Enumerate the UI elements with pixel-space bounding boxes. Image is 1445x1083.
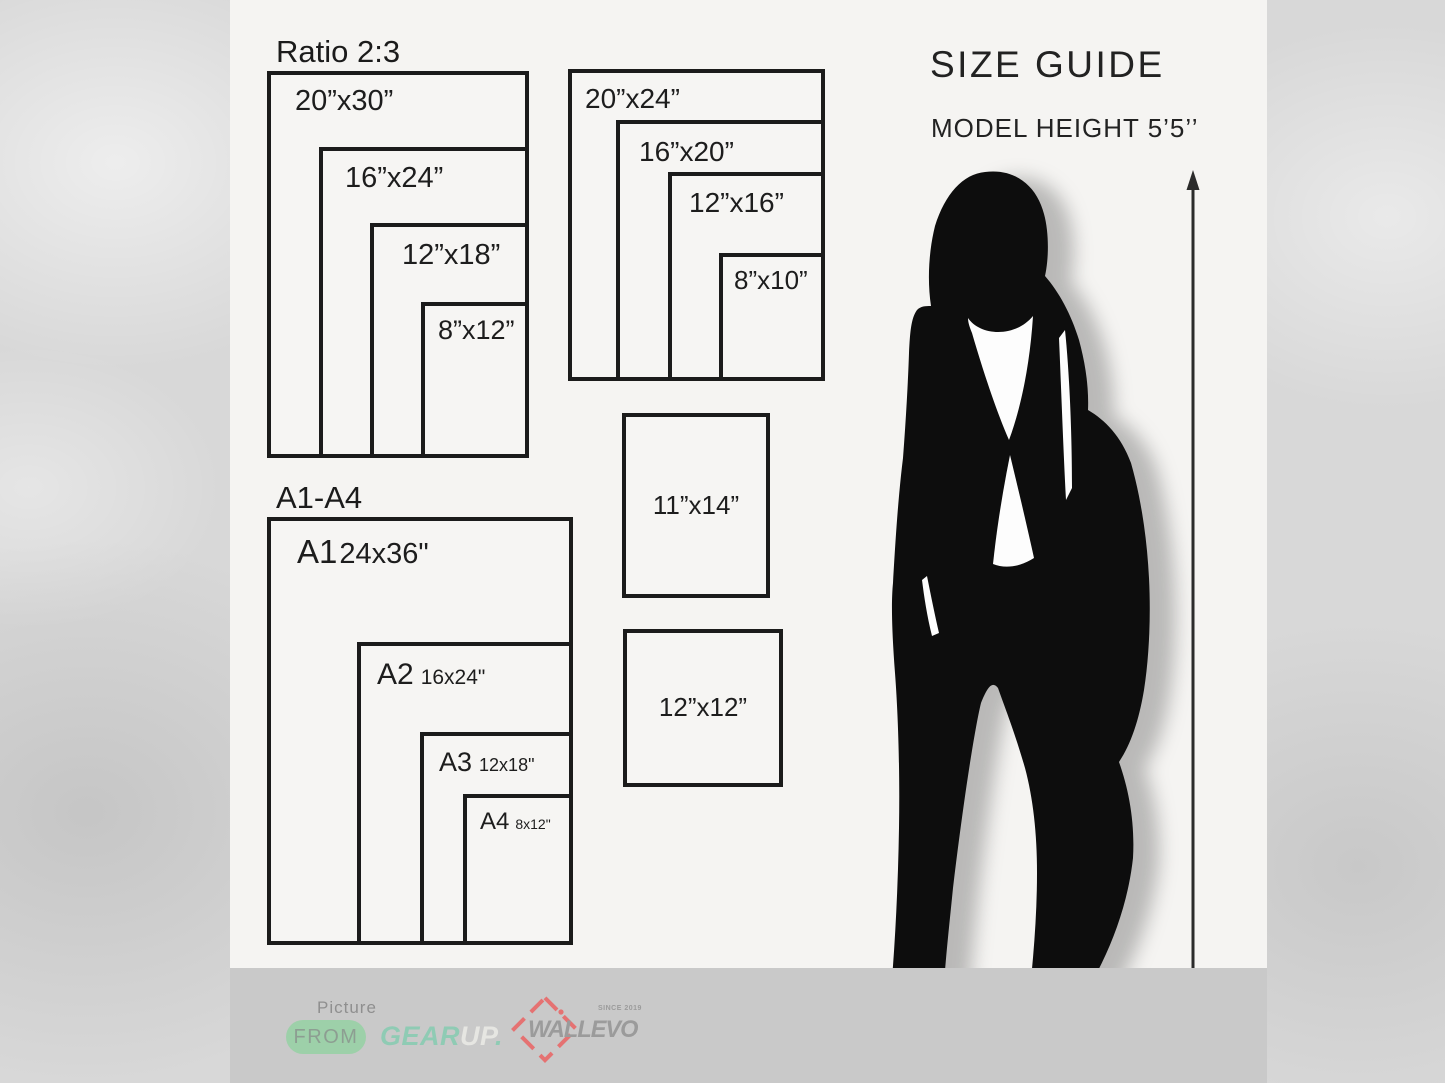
a-series-name: A4 <box>480 808 509 836</box>
a-series-size: 8x12" <box>515 816 550 832</box>
gearup-logo-up: UP <box>460 1021 495 1051</box>
a-series-size: 12x18" <box>479 755 534 776</box>
gearup-logo-gear: GEAR <box>380 1021 460 1051</box>
frame-size-label: 8”x10” <box>723 257 821 296</box>
frame-size-label: 20”x24” <box>572 73 821 115</box>
frame-11x14: 11”x14” <box>622 413 770 598</box>
ratio-group-title: Ratio 2:3 <box>276 36 400 67</box>
frame-size-label: 16”x24” <box>323 151 525 195</box>
page-title: SIZE GUIDE <box>930 44 1165 86</box>
wallevo-logo-name: WALLEVO <box>528 1016 637 1044</box>
frame-size-label: 12”x18” <box>374 227 525 272</box>
frame-a4: A4 8x12" <box>463 794 573 945</box>
model-height-label: MODEL HEIGHT 5’5’’ <box>931 113 1198 144</box>
gearup-logo-dot: . <box>495 1021 503 1051</box>
a-series-name: A1 <box>297 533 337 571</box>
frame-12x12: 12”x12” <box>623 629 783 787</box>
gearup-logo: GEARUP. <box>380 1021 503 1052</box>
footer-logo-bar: Picture FROM GEARUP. WALLEVO SINCE 2019 <box>230 968 1267 1083</box>
wallevo-logo-tagline: SINCE 2019 <box>598 1005 642 1012</box>
frame-size-label: 12”x12” <box>659 693 747 723</box>
size-guide-panel: Ratio 2:3 20”x30” 16”x24” 12”x18” 8”x12”… <box>230 0 1267 1083</box>
picture-label: Picture <box>317 998 377 1018</box>
a-series-group-title: A1-A4 <box>276 482 362 513</box>
a-series-name: A2 <box>377 658 414 693</box>
frame-size-label: 20”x30” <box>271 75 525 118</box>
frame-size-label: 8”x12” <box>425 306 525 346</box>
frame-8x12: 8”x12” <box>421 302 529 458</box>
height-arrow-icon <box>1180 168 1206 1016</box>
from-badge-label: FROM <box>294 1026 359 1049</box>
frame-size-label: 12”x16” <box>672 176 821 219</box>
frame-8x10: 8”x10” <box>719 253 825 381</box>
model-silhouette <box>865 168 1165 1018</box>
a-series-size: 24x36" <box>339 538 428 571</box>
a-series-size: 16x24" <box>421 666 486 690</box>
frame-size-label: 11”x14” <box>653 491 739 521</box>
frame-size-label: 16”x20” <box>620 124 821 168</box>
a-series-name: A3 <box>439 747 472 778</box>
from-badge: FROM <box>286 1020 366 1054</box>
wallevo-logo: WALLEVO SINCE 2019 <box>508 988 668 1078</box>
page-background: Ratio 2:3 20”x30” 16”x24” 12”x18” 8”x12”… <box>0 0 1445 1083</box>
